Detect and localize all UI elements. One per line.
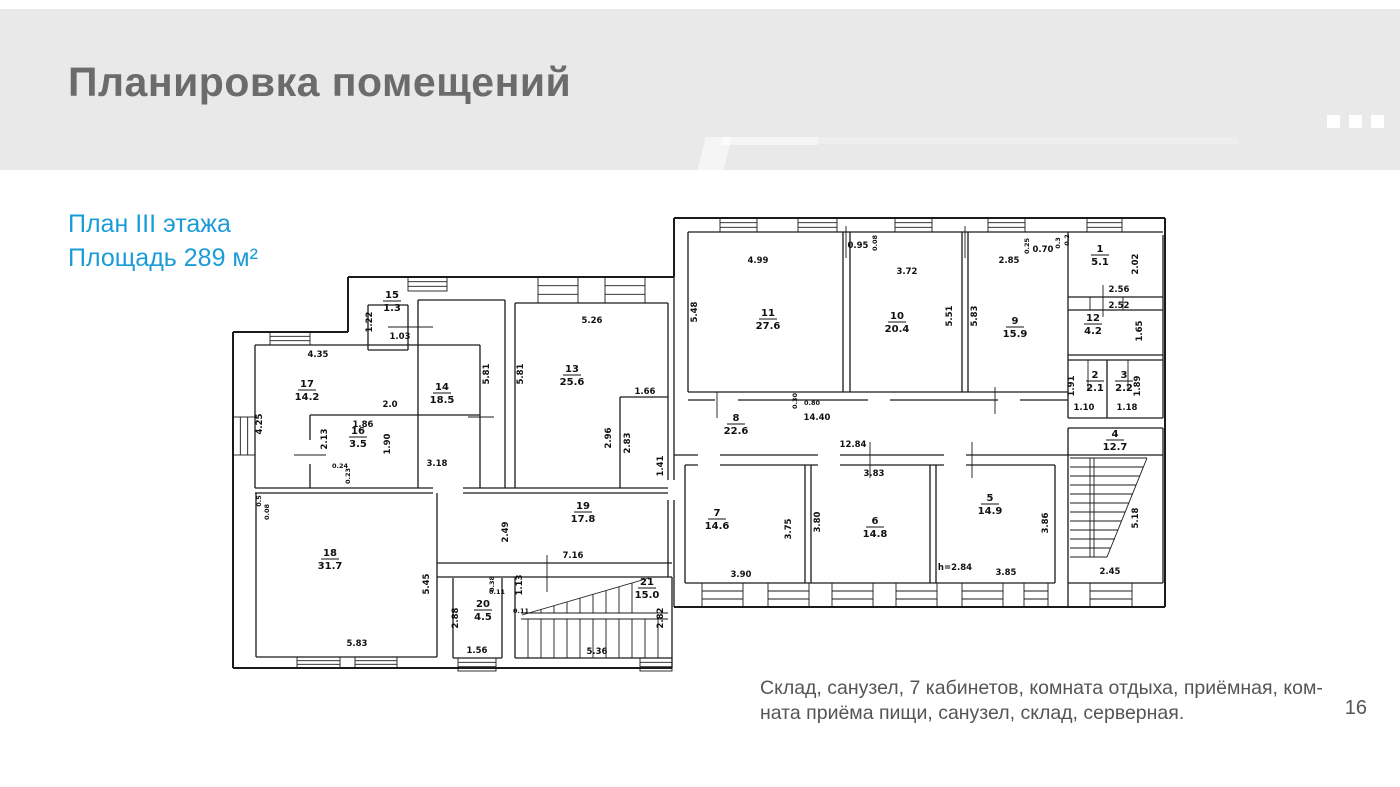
svg-text:2.52: 2.52: [1109, 301, 1130, 311]
svg-text:4.99: 4.99: [748, 256, 769, 266]
svg-text:1.41: 1.41: [656, 455, 666, 476]
svg-text:5.81: 5.81: [516, 363, 526, 384]
wing-boundary-walls: [668, 277, 674, 668]
page-number: 16: [1345, 697, 1367, 720]
svg-text:2.0: 2.0: [382, 400, 397, 410]
svg-text:13: 13: [565, 364, 579, 375]
svg-text:5.1: 5.1: [1091, 257, 1109, 268]
svg-text:1.90: 1.90: [383, 433, 393, 454]
decorative-squares: [1327, 115, 1384, 128]
svg-text:0.23: 0.23: [344, 468, 352, 484]
svg-text:8: 8: [733, 413, 740, 424]
svg-text:6: 6: [872, 516, 879, 527]
caption: Склад, санузел, 7 кабинетов, комната отд…: [760, 676, 1360, 726]
svg-text:1.10: 1.10: [1074, 403, 1095, 413]
svg-text:1.13: 1.13: [515, 574, 525, 595]
svg-text:15.9: 15.9: [1003, 329, 1028, 340]
svg-text:3.72: 3.72: [897, 267, 918, 277]
svg-text:1.89: 1.89: [1133, 375, 1143, 396]
svg-text:h=2.84: h=2.84: [938, 563, 972, 573]
svg-text:7.16: 7.16: [563, 551, 584, 561]
svg-text:2.1: 2.1: [1086, 383, 1104, 394]
svg-text:0.2: 0.2: [1063, 234, 1071, 246]
svg-text:9: 9: [1012, 316, 1019, 327]
slide: Планировка помещений План III этажа Площ…: [0, 0, 1400, 787]
svg-text:1.3: 1.3: [383, 303, 401, 314]
svg-text:14.40: 14.40: [804, 413, 831, 423]
decorative-square: [1349, 115, 1362, 128]
svg-text:0.08: 0.08: [263, 504, 271, 521]
svg-text:0.95: 0.95: [848, 241, 869, 251]
svg-text:17: 17: [300, 379, 314, 390]
svg-text:2: 2: [1092, 370, 1099, 381]
svg-text:0.3: 0.3: [1054, 237, 1062, 249]
svg-text:2.49: 2.49: [501, 521, 511, 542]
svg-text:1.86: 1.86: [353, 420, 374, 430]
svg-text:14.2: 14.2: [295, 392, 320, 403]
svg-text:3: 3: [1121, 370, 1128, 381]
svg-text:1: 1: [1097, 244, 1104, 255]
decorative-square: [1371, 115, 1384, 128]
svg-text:2.45: 2.45: [1100, 567, 1121, 577]
svg-text:2.83: 2.83: [623, 432, 633, 453]
svg-text:1.66: 1.66: [635, 387, 656, 397]
svg-text:0.25: 0.25: [1023, 238, 1031, 255]
svg-text:17.8: 17.8: [571, 514, 596, 525]
watermark-logo-shape: [722, 137, 818, 145]
svg-text:11: 11: [761, 308, 775, 319]
svg-text:5.81: 5.81: [482, 363, 492, 384]
svg-text:7: 7: [714, 508, 721, 519]
svg-text:1.22: 1.22: [365, 311, 375, 332]
svg-text:12.84: 12.84: [840, 440, 867, 450]
svg-text:4.5: 4.5: [474, 612, 492, 623]
svg-text:0.11: 0.11: [489, 588, 506, 596]
svg-text:2.96: 2.96: [604, 427, 614, 448]
decorative-square: [1327, 115, 1340, 128]
svg-text:2.82: 2.82: [656, 607, 666, 628]
svg-text:5.36: 5.36: [587, 647, 608, 657]
svg-text:4.35: 4.35: [308, 350, 329, 360]
svg-text:19: 19: [576, 501, 590, 512]
svg-text:25.6: 25.6: [560, 377, 585, 388]
svg-text:5.18: 5.18: [1131, 507, 1141, 528]
svg-text:0.11: 0.11: [513, 607, 530, 615]
svg-text:15: 15: [385, 290, 399, 301]
windows-and-ticks: [233, 218, 1132, 671]
svg-text:31.7: 31.7: [318, 561, 343, 572]
page-title: Планировка помещений: [68, 59, 571, 106]
svg-text:20: 20: [476, 599, 490, 610]
svg-text:1.18: 1.18: [1117, 403, 1138, 413]
svg-text:4: 4: [1112, 429, 1119, 440]
svg-text:2.85: 2.85: [999, 256, 1020, 266]
caption-line2: ната приёма пищи, санузел, склад, сервер…: [760, 701, 1360, 726]
svg-text:1.65: 1.65: [1135, 320, 1145, 341]
svg-text:0.70: 0.70: [1033, 245, 1054, 255]
svg-text:5: 5: [987, 493, 994, 504]
svg-text:1.91: 1.91: [1067, 375, 1077, 396]
svg-text:5.26: 5.26: [582, 316, 603, 326]
svg-text:2.02: 2.02: [1131, 253, 1141, 274]
svg-text:0.80: 0.80: [804, 399, 821, 407]
svg-text:22.6: 22.6: [724, 426, 749, 437]
svg-text:12: 12: [1086, 313, 1100, 324]
svg-text:3.86: 3.86: [1041, 512, 1051, 533]
svg-text:0.30: 0.30: [791, 393, 799, 410]
svg-text:4.25: 4.25: [255, 413, 265, 434]
svg-text:3.18: 3.18: [427, 459, 448, 469]
svg-text:18.5: 18.5: [430, 395, 455, 406]
svg-text:12.7: 12.7: [1103, 442, 1128, 453]
svg-text:5.51: 5.51: [945, 305, 955, 326]
svg-text:14.6: 14.6: [705, 521, 730, 532]
svg-text:3.83: 3.83: [864, 469, 885, 479]
outer-walls: [233, 218, 1165, 668]
svg-text:15.0: 15.0: [635, 590, 660, 601]
caption-line1: Склад, санузел, 7 кабинетов, комната отд…: [760, 676, 1360, 701]
svg-text:3.85: 3.85: [996, 568, 1017, 578]
stairs-4: [1070, 458, 1147, 557]
svg-text:2.56: 2.56: [1109, 285, 1130, 295]
svg-text:18: 18: [323, 548, 337, 559]
svg-text:4.2: 4.2: [1084, 326, 1102, 337]
svg-text:2.88: 2.88: [451, 607, 461, 628]
svg-text:5.45: 5.45: [422, 573, 432, 594]
watermark-streak: [818, 137, 1238, 144]
svg-text:5.83: 5.83: [347, 639, 368, 649]
svg-text:1.03: 1.03: [390, 332, 411, 342]
svg-text:2.2: 2.2: [1115, 383, 1133, 394]
svg-text:5.83: 5.83: [970, 305, 980, 326]
svg-text:2.13: 2.13: [320, 428, 330, 449]
slide-header-band: Планировка помещений: [0, 9, 1400, 170]
svg-text:1.56: 1.56: [467, 646, 488, 656]
floor-plan: 1714.2163.5151.31418.51325.61831.71917.8…: [228, 202, 1173, 677]
svg-text:20.4: 20.4: [885, 324, 910, 335]
svg-text:0.08: 0.08: [871, 235, 879, 252]
svg-text:14.8: 14.8: [863, 529, 888, 540]
svg-text:3.75: 3.75: [784, 518, 794, 539]
svg-text:14: 14: [435, 382, 449, 393]
svg-text:5.48: 5.48: [690, 301, 700, 322]
svg-text:3.80: 3.80: [813, 511, 823, 532]
svg-text:3.5: 3.5: [349, 439, 367, 450]
svg-text:10: 10: [890, 311, 904, 322]
svg-text:14.9: 14.9: [978, 506, 1003, 517]
svg-text:27.6: 27.6: [756, 321, 781, 332]
room-and-dimension-labels: 1714.2163.5151.31418.51325.61831.71917.8…: [255, 234, 1145, 657]
svg-text:3.90: 3.90: [731, 570, 752, 580]
svg-text:0.5: 0.5: [255, 495, 263, 507]
svg-text:21: 21: [640, 577, 654, 588]
